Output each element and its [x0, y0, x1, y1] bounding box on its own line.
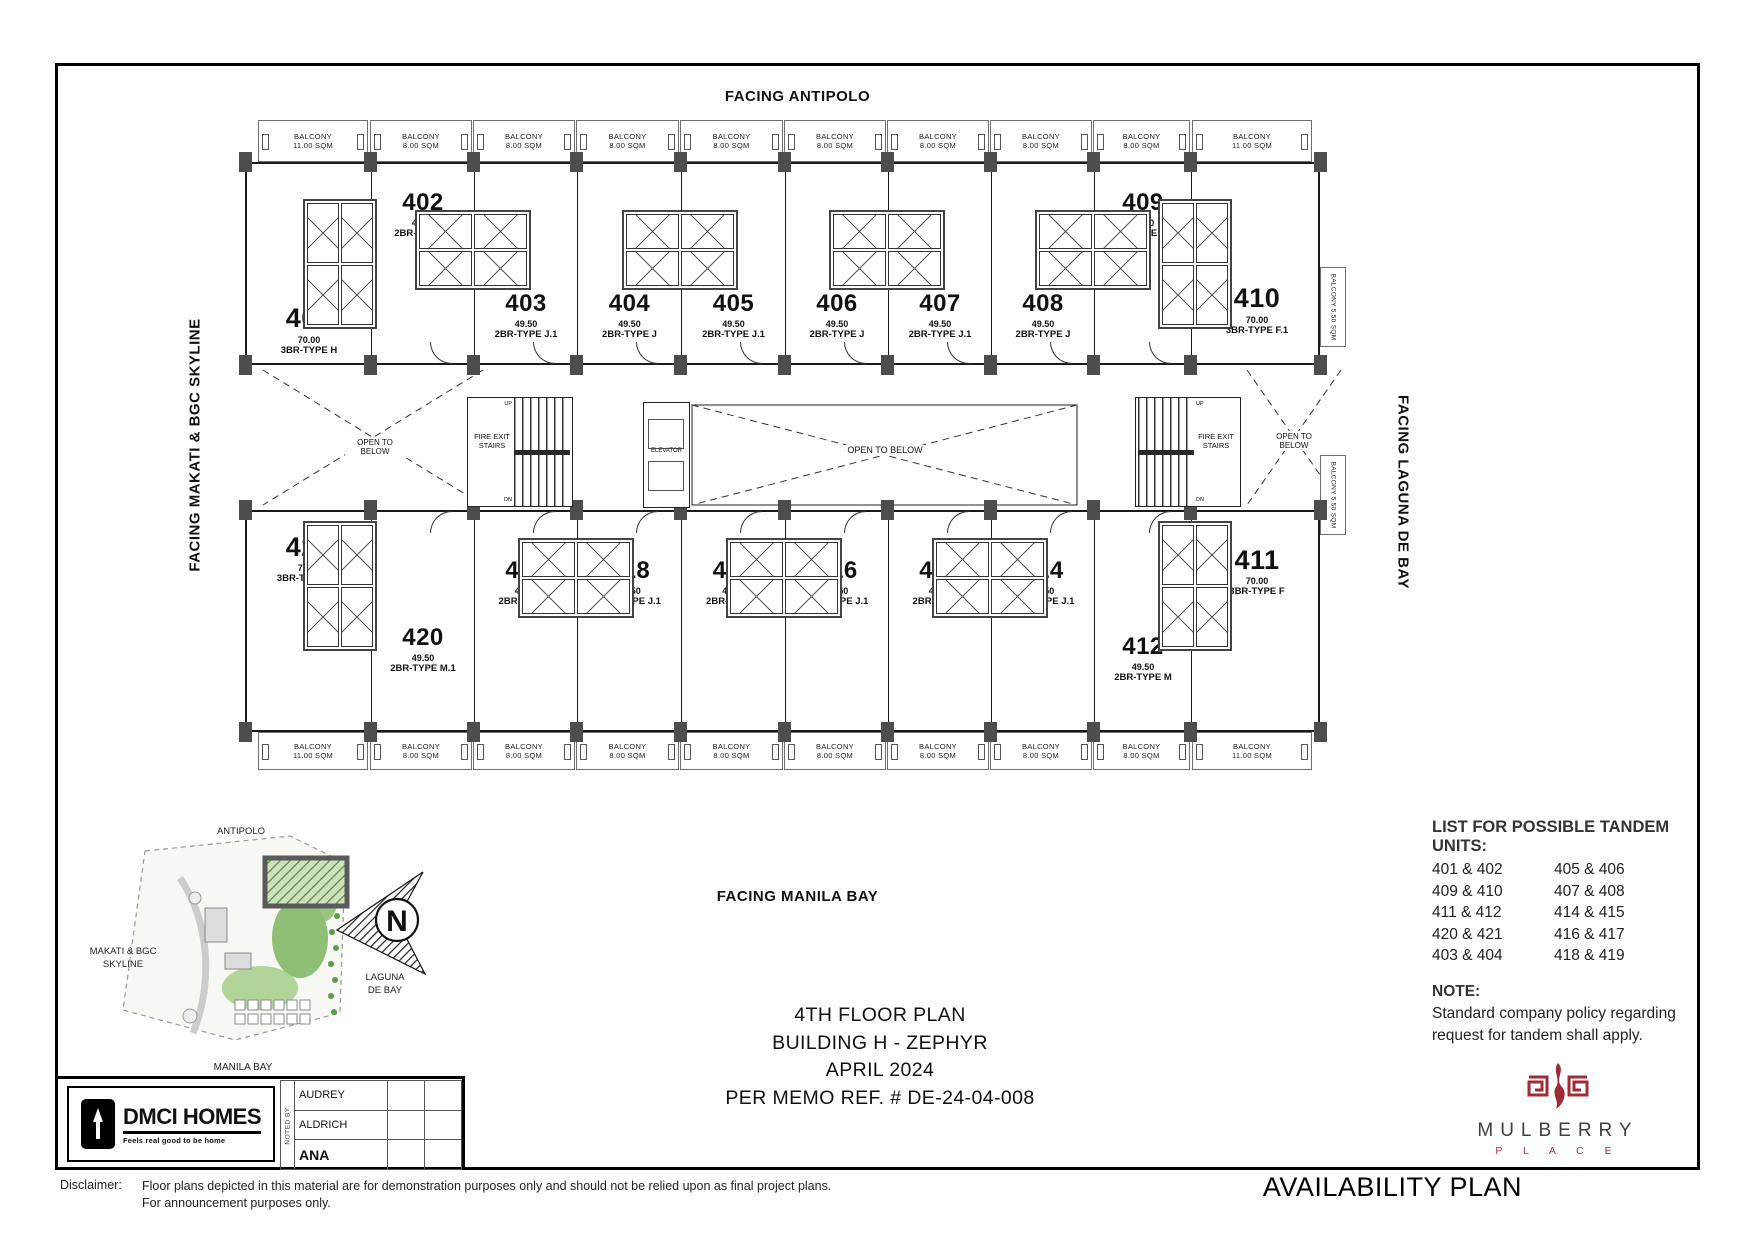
bathroom-cluster: [303, 199, 377, 329]
balcony-label: BALCONY: [1022, 742, 1060, 751]
floor-plan: 40170.003BR-TYPE H40249.502BR-TYPE M4034…: [245, 115, 1350, 775]
note-title: NOTE:: [1432, 983, 1480, 1000]
mulberry-glyph-icon: [1525, 1061, 1591, 1113]
fixture-box: [1162, 587, 1194, 647]
column-block: [467, 722, 480, 742]
column-block: [1314, 722, 1327, 742]
bathroom-cluster: [1035, 210, 1151, 290]
tandem-pair: 416 & 417: [1554, 924, 1674, 946]
unit-type: 3BR-TYPE H: [247, 346, 371, 357]
unit-number: 420: [372, 625, 474, 652]
elevator-car: [648, 461, 684, 491]
side-balcony-label: BALCONY 5.50 SQM: [1330, 462, 1337, 529]
top-balcony: BALCONY11.00 SQM: [258, 120, 368, 162]
fixture-box: [1039, 214, 1092, 249]
elevator: ELEVATOR: [643, 402, 690, 508]
unit-type: 2BR-TYPE J: [786, 330, 888, 341]
column-block: [467, 355, 480, 375]
site-location-map: N ANTIPOLO MAKATI & BGC SKYLINE LAGUNA D…: [85, 748, 445, 1078]
column-block: [778, 355, 791, 375]
elevator-label: ELEVATOR: [644, 447, 689, 456]
facing-antipolo-label: FACING ANTIPOLO: [245, 88, 1350, 105]
fixture-box: [341, 525, 373, 585]
column-block: [881, 355, 894, 375]
fixture-box: [341, 203, 373, 263]
dmci-logo-block: DMCI HOMES Feels real good to be home: [67, 1086, 275, 1162]
open-to-below-center: OPEN TO BELOW: [805, 445, 965, 456]
facing-laguna-label: FACING LAGUNA DE BAY: [1395, 395, 1412, 589]
open-to-below-left: OPEN TO BELOW: [345, 437, 405, 457]
bathroom-cluster: [1158, 521, 1232, 651]
balcony-area: 8.00 SQM: [713, 751, 749, 760]
column-block: [570, 722, 583, 742]
stair-landing: [514, 450, 570, 455]
balcony-area: 8.00 SQM: [1123, 751, 1159, 760]
dmci-tagline: Feels real good to be home: [123, 1136, 261, 1145]
fixture-box: [991, 542, 1044, 577]
dmci-mark-icon: [81, 1099, 115, 1149]
map-label-manila-bay: MANILA BAY: [214, 1062, 273, 1073]
balcony-area: 11.00 SQM: [1232, 141, 1272, 150]
unit-label-405: 40549.502BR-TYPE J.1: [682, 291, 785, 341]
column-block: [984, 152, 997, 172]
noted-by-empty-cell: [388, 1081, 425, 1110]
fixture-box: [1162, 265, 1194, 325]
availability-plan-sheet: FACING ANTIPOLO FACING MAKATI & BGC SKYL…: [0, 0, 1755, 1248]
balcony-area: 8.00 SQM: [1123, 141, 1159, 150]
fixture-box: [626, 251, 679, 286]
column-block: [1184, 722, 1197, 742]
unit-label-408: 40849.502BR-TYPE J: [992, 291, 1094, 341]
fixture-box: [522, 542, 575, 577]
availability-plan-title: AVAILABILITY PLAN: [1263, 1172, 1522, 1203]
balcony-label: BALCONY: [294, 132, 332, 141]
tandem-column-2: 405 & 406407 & 408414 & 415416 & 417418 …: [1554, 859, 1674, 967]
column-block: [778, 722, 791, 742]
fixture-box: [991, 579, 1044, 614]
balcony-label: BALCONY: [609, 132, 647, 141]
column-block: [1314, 355, 1327, 375]
fixture-box: [936, 579, 989, 614]
elevator-car: [648, 419, 684, 449]
top-balcony: BALCONY8.00 SQM: [576, 120, 679, 162]
unit-label-406: 40649.502BR-TYPE J: [786, 291, 888, 341]
unit-area: 49.50: [992, 319, 1094, 329]
fixture-box: [730, 579, 783, 614]
balcony-label: BALCONY: [402, 132, 440, 141]
fixture-box: [307, 587, 339, 647]
bottom-balcony: BALCONY11.00 SQM: [1192, 732, 1312, 770]
tandem-pair: 409 & 410: [1432, 881, 1554, 903]
balcony-label: BALCONY: [1233, 742, 1271, 751]
fixture-box: [419, 251, 472, 286]
unit-type: 2BR-TYPE J.1: [475, 330, 577, 341]
unit-area: 49.50: [372, 653, 474, 663]
balcony-label: BALCONY: [1022, 132, 1060, 141]
tandem-pair: 418 & 419: [1554, 945, 1674, 967]
fixture-box: [833, 214, 886, 249]
dn-label: DN: [504, 497, 512, 503]
balcony-area: 8.00 SQM: [609, 751, 645, 760]
unit-type: 2BR-TYPE J: [578, 330, 681, 341]
map-label-laguna-2: DE BAY: [368, 985, 403, 996]
column-block: [364, 152, 377, 172]
balcony-label: BALCONY: [713, 132, 751, 141]
balcony-label: BALCONY: [816, 132, 854, 141]
map-label-laguna-1: LAGUNA: [365, 972, 405, 983]
column-block: [984, 355, 997, 375]
bottom-balcony: BALCONY8.00 SQM: [1093, 732, 1190, 770]
column-block: [881, 500, 894, 520]
unit-label-403: 40349.502BR-TYPE J.1: [475, 291, 577, 341]
column-block: [364, 722, 377, 742]
column-block: [570, 152, 583, 172]
mulberry-name: MULBERRY: [1432, 1120, 1684, 1142]
balcony-area: 8.00 SQM: [506, 141, 542, 150]
fixture-box: [1094, 251, 1147, 286]
unit-area: 49.50: [889, 319, 991, 329]
column-block: [239, 355, 252, 375]
fixture-box: [577, 542, 630, 577]
unit-number: 405: [682, 291, 785, 318]
column-block: [674, 355, 687, 375]
column-block: [984, 500, 997, 520]
map-label-makati-2: SKYLINE: [103, 959, 143, 970]
fixture-box: [1094, 214, 1147, 249]
bottom-balcony: BALCONY8.00 SQM: [784, 732, 886, 770]
balcony-area: 8.00 SQM: [817, 141, 853, 150]
unit-number: 407: [889, 291, 991, 318]
balcony-label: BALCONY: [505, 132, 543, 141]
column-block: [1087, 355, 1100, 375]
noted-by-empty-cell: [425, 1081, 461, 1110]
fixture-box: [1196, 525, 1228, 585]
unit-type: 2BR-TYPE J.1: [682, 330, 785, 341]
fixture-box: [1162, 525, 1194, 585]
balcony-label: BALCONY: [609, 742, 647, 751]
column-block: [467, 152, 480, 172]
fire-exit-stairs-left: FIRE EXIT STAIRSUPDN: [467, 397, 573, 507]
fixture-box: [681, 251, 734, 286]
column-block: [570, 355, 583, 375]
unit-area: 49.50: [1095, 662, 1191, 672]
noted-by-row: ANA: [295, 1140, 461, 1169]
fixture-box: [307, 525, 339, 585]
noted-by-label: NOTED BY:: [284, 1105, 291, 1144]
unit-area: 49.50: [682, 319, 785, 329]
fire-exit-stairs-label: FIRE EXIT STAIRS: [470, 432, 514, 450]
fixture-box: [522, 579, 575, 614]
fixture-box: [730, 542, 783, 577]
unit-type: 2BR-TYPE J.1: [889, 330, 991, 341]
up-label: UP: [1196, 401, 1204, 407]
noted-by-empty-cell: [388, 1111, 425, 1140]
fixture-box: [785, 542, 838, 577]
title-date: APRIL 2024: [600, 1057, 1160, 1085]
column-block: [1087, 500, 1100, 520]
noted-by-name: AUDREY: [295, 1081, 388, 1110]
dn-label: DN: [1196, 497, 1204, 503]
bathroom-cluster: [726, 538, 842, 618]
column-block: [1087, 152, 1100, 172]
fixture-box: [577, 579, 630, 614]
balcony-label: BALCONY: [1123, 742, 1161, 751]
tandem-pair: 411 & 412: [1432, 902, 1554, 924]
balcony-area: 8.00 SQM: [713, 141, 749, 150]
column-block: [364, 500, 377, 520]
balcony-area: 11.00 SQM: [293, 141, 333, 150]
top-balcony: BALCONY8.00 SQM: [370, 120, 472, 162]
fixture-box: [419, 214, 472, 249]
bottom-balcony: BALCONY8.00 SQM: [680, 732, 783, 770]
top-balcony: BALCONY8.00 SQM: [990, 120, 1092, 162]
fixture-box: [833, 251, 886, 286]
balcony-area: 8.00 SQM: [403, 141, 439, 150]
balcony-label: BALCONY: [1123, 132, 1161, 141]
titleblock-divider: [462, 1076, 465, 1170]
balcony-label: BALCONY: [713, 742, 751, 751]
disclaimer: Disclaimer: Floor plans depicted in this…: [60, 1178, 831, 1212]
tandem-title: LIST FOR POSSIBLE TANDEM: [1432, 818, 1684, 837]
map-label-antipolo: ANTIPOLO: [217, 826, 265, 837]
top-balcony: BALCONY8.00 SQM: [680, 120, 783, 162]
tandem-pair: 407 & 408: [1554, 881, 1674, 903]
top-balcony: BALCONY8.00 SQM: [887, 120, 989, 162]
fixture-box: [341, 587, 373, 647]
balcony-label: BALCONY: [919, 742, 957, 751]
dmci-name: DMCI HOMES: [123, 1104, 261, 1134]
top-balcony: BALCONY8.00 SQM: [784, 120, 886, 162]
balcony-label: BALCONY: [816, 742, 854, 751]
unit-type: 2BR-TYPE M: [1095, 673, 1191, 684]
unit-area: 70.00: [247, 335, 371, 345]
column-block: [1087, 722, 1100, 742]
noted-by-row: AUDREY: [295, 1081, 461, 1111]
tandem-pair: 401 & 402: [1432, 859, 1554, 881]
side-balcony: BALCONY 5.50 SQM: [1320, 267, 1346, 347]
top-balcony: BALCONY11.00 SQM: [1192, 120, 1312, 162]
fixture-box: [785, 579, 838, 614]
title-building: BUILDING H - ZEPHYR: [600, 1030, 1160, 1058]
column-block: [881, 722, 894, 742]
fire-exit-stairs-right: FIRE EXIT STAIRSUPDN: [1135, 397, 1241, 507]
bathroom-cluster: [622, 210, 738, 290]
bottom-balcony: BALCONY8.00 SQM: [990, 732, 1092, 770]
side-balcony-label: BALCONY 5.50 SQM: [1330, 274, 1337, 341]
column-block: [1184, 355, 1197, 375]
disclaimer-line2: For announcement purposes only.: [142, 1195, 831, 1212]
unit-number: 404: [578, 291, 681, 318]
column-block: [674, 152, 687, 172]
bathroom-cluster: [415, 210, 531, 290]
tandem-pair: 403 & 404: [1432, 945, 1554, 967]
noted-by-row: ALDRICH: [295, 1111, 461, 1141]
unit-label-420: 42049.502BR-TYPE M.1: [372, 625, 474, 675]
noted-by-table: NOTED BY: AUDREYALDRICHANA: [280, 1080, 462, 1170]
fixture-box: [341, 265, 373, 325]
fixture-box: [1196, 265, 1228, 325]
fixture-box: [681, 214, 734, 249]
disclaimer-line1: Floor plans depicted in this material ar…: [142, 1178, 831, 1195]
unit-type: 2BR-TYPE J: [992, 330, 1094, 341]
column-block: [239, 152, 252, 172]
tandem-pair: 405 & 406: [1554, 859, 1674, 881]
fixture-box: [474, 214, 527, 249]
unit-type: 2BR-TYPE M.1: [372, 664, 474, 675]
fire-exit-stairs-label: FIRE EXIT STAIRS: [1194, 432, 1238, 450]
balcony-area: 8.00 SQM: [920, 751, 956, 760]
unit-number: 406: [786, 291, 888, 318]
column-block: [1314, 152, 1327, 172]
mulberry-place: P L A C E: [1432, 1145, 1684, 1157]
fixture-box: [474, 251, 527, 286]
plan-title-block: 4TH FLOOR PLAN BUILDING H - ZEPHYR APRIL…: [600, 1002, 1160, 1112]
fixture-box: [888, 251, 941, 286]
balcony-label: BALCONY: [505, 742, 543, 751]
balcony-label: BALCONY: [1233, 132, 1271, 141]
balcony-area: 8.00 SQM: [920, 141, 956, 150]
unit-area: 49.50: [786, 319, 888, 329]
unit-area: 49.50: [475, 319, 577, 329]
note-line2: request for tandem shall apply.: [1432, 1025, 1684, 1047]
bottom-balcony: BALCONY8.00 SQM: [473, 732, 575, 770]
fixture-box: [936, 542, 989, 577]
up-label: UP: [504, 401, 512, 407]
tandem-column-1: 401 & 402409 & 410411 & 412420 & 421403 …: [1432, 859, 1554, 967]
noted-by-rows: AUDREYALDRICHANA: [295, 1081, 461, 1169]
fixture-box: [888, 214, 941, 249]
top-balcony: BALCONY8.00 SQM: [473, 120, 575, 162]
column-block: [984, 722, 997, 742]
fixture-box: [1196, 203, 1228, 263]
column-block: [881, 152, 894, 172]
bathroom-cluster: [932, 538, 1048, 618]
tandem-pair: 414 & 415: [1554, 902, 1674, 924]
bathroom-cluster: [303, 521, 377, 651]
fixture-box: [626, 214, 679, 249]
column-block: [239, 500, 252, 520]
tandem-subtitle: UNITS:: [1432, 837, 1684, 856]
open-to-below-right: OPEN TO BELOW: [1264, 431, 1324, 451]
bathroom-cluster: [1158, 199, 1232, 329]
column-block: [778, 152, 791, 172]
note-block: NOTE: Standard company policy regarding …: [1432, 981, 1684, 1047]
title-floor: 4TH FLOOR PLAN: [600, 1002, 1160, 1030]
noted-by-empty-cell: [425, 1140, 461, 1169]
column-block: [1184, 152, 1197, 172]
side-balcony: BALCONY 5.50 SQM: [1320, 455, 1346, 535]
column-block: [674, 722, 687, 742]
stair-landing: [1138, 450, 1194, 455]
balcony-label: BALCONY: [919, 132, 957, 141]
unit-area: 49.50: [578, 319, 681, 329]
balcony-area: 8.00 SQM: [817, 751, 853, 760]
fixture-box: [1039, 251, 1092, 286]
balcony-area: 11.00 SQM: [1232, 751, 1272, 760]
tandem-panel: LIST FOR POSSIBLE TANDEM UNITS: 401 & 40…: [1432, 818, 1684, 1157]
title-memo-ref: PER MEMO REF. # DE-24-04-008: [600, 1085, 1160, 1113]
note-line1: Standard company policy regarding: [1432, 1003, 1684, 1025]
unit-number: 403: [475, 291, 577, 318]
column-block: [1314, 500, 1327, 520]
fixture-box: [1196, 587, 1228, 647]
balcony-area: 8.00 SQM: [609, 141, 645, 150]
mulberry-logo: MULBERRY P L A C E: [1432, 1061, 1684, 1157]
bathroom-cluster: [518, 538, 634, 618]
fixture-box: [1162, 203, 1194, 263]
bottom-balcony: BALCONY8.00 SQM: [576, 732, 679, 770]
map-label-makati-1: MAKATI & BGC: [90, 946, 157, 957]
tandem-pair: 420 & 421: [1432, 924, 1554, 946]
bottom-balcony: BALCONY8.00 SQM: [887, 732, 989, 770]
balcony-area: 8.00 SQM: [1023, 751, 1059, 760]
building-h-highlight: [265, 858, 347, 906]
unit-label-404: 40449.502BR-TYPE J: [578, 291, 681, 341]
top-balcony: BALCONY8.00 SQM: [1093, 120, 1190, 162]
noted-by-name: ALDRICH: [295, 1111, 388, 1140]
unit-label-407: 40749.502BR-TYPE J.1: [889, 291, 991, 341]
noted-by-label-cell: NOTED BY:: [281, 1081, 295, 1169]
unit-420: 42049.502BR-TYPE M.1: [372, 512, 475, 730]
balcony-area: 8.00 SQM: [506, 751, 542, 760]
column-block: [239, 722, 252, 742]
noted-by-name: ANA: [295, 1140, 388, 1169]
balcony-area: 8.00 SQM: [1023, 141, 1059, 150]
column-block: [778, 500, 791, 520]
facing-makati-label: FACING MAKATI & BGC SKYLINE: [187, 318, 204, 571]
noted-by-empty-cell: [388, 1140, 425, 1169]
column-block: [364, 355, 377, 375]
fixture-box: [307, 265, 339, 325]
fixture-box: [307, 203, 339, 263]
noted-by-empty-cell: [425, 1111, 461, 1140]
disclaimer-label: Disclaimer:: [60, 1178, 122, 1212]
compass-n: N: [386, 905, 408, 938]
unit-number: 408: [992, 291, 1094, 318]
bathroom-cluster: [829, 210, 945, 290]
